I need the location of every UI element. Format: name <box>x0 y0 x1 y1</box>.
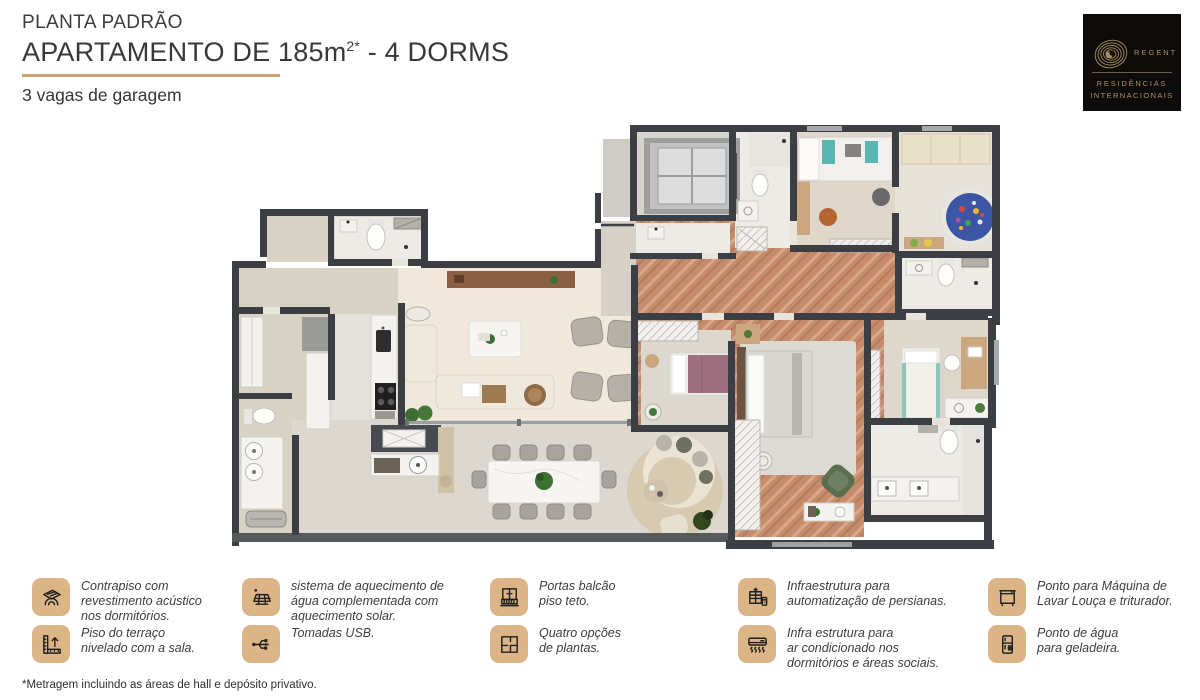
legend-col-2: sistema de aquecimento de água complemen… <box>242 578 480 672</box>
legend-item: Quatro opções de plantas. <box>490 625 728 663</box>
title-main: APARTAMENTO DE 185m <box>22 37 346 67</box>
header: PLANTA PADRÃO APARTAMENTO DE 185m2* - 4 … <box>22 12 509 106</box>
logo-divider <box>1092 72 1172 73</box>
page: PLANTA PADRÃO APARTAMENTO DE 185m2* - 4 … <box>0 0 1200 700</box>
legend-item-text: Tomadas USB. <box>291 625 375 641</box>
dishwasher-point-icon <box>988 578 1026 616</box>
air-conditioning-icon <box>738 625 776 663</box>
legend-item: Infraestrutura para automatização de per… <box>738 578 980 616</box>
acoustic-floor-icon <box>32 578 70 616</box>
title-sup: 2* <box>346 38 360 54</box>
logo-line1: RESIDÊNCIAS <box>1083 79 1181 88</box>
legend-item: Ponto de água para geladeira. <box>988 625 1188 663</box>
legend-item-text: Portas balcão piso teto. <box>539 578 615 609</box>
regent-logo: REGENT RESIDÊNCIAS INTERNACIONAIS <box>1083 14 1181 111</box>
legend-col-4: Infraestrutura para automatização de per… <box>738 578 980 672</box>
legend-item: Infra estrutura para ar condicionado nos… <box>738 625 980 663</box>
legend-item-text: Quatro opções de plantas. <box>539 625 621 656</box>
legend-item-text: Infra estrutura para ar condicionado nos… <box>787 625 939 670</box>
legend-item: sistema de aquecimento de água complemen… <box>242 578 480 616</box>
legend-item-text: Contrapiso com revestimento acústico nos… <box>81 578 202 623</box>
legend-col-5: Ponto para Máquina de Lavar Louça e trit… <box>988 578 1188 672</box>
title-tail: - 4 DORMS <box>360 37 509 67</box>
plan-eyebrow: PLANTA PADRÃO <box>22 12 509 34</box>
footnote: *Metragem incluindo as áreas de hall e d… <box>22 679 317 691</box>
terrace-level-icon <box>32 625 70 663</box>
legend-item-text: Ponto de água para geladeira. <box>1037 625 1120 656</box>
legend-item-text: Piso do terraço nivelado com a sala. <box>81 625 195 656</box>
legend-item-text: Ponto para Máquina de Lavar Louça e trit… <box>1037 578 1173 609</box>
blinds-automation-icon <box>738 578 776 616</box>
page-title: APARTAMENTO DE 185m2* - 4 DORMS <box>22 37 509 68</box>
legend-col-1: Contrapiso com revestimento acústico nos… <box>32 578 232 672</box>
legend-item-text: Infraestrutura para automatização de per… <box>787 578 947 609</box>
fridge-water-icon <box>988 625 1026 663</box>
garage-subtitle: 3 vagas de garagem <box>22 85 509 106</box>
legend-item: Portas balcão piso teto. <box>490 578 728 616</box>
floor-plan <box>232 125 1002 563</box>
legend-col-3: Portas balcão piso teto. Quatro opções d… <box>490 578 728 672</box>
legend-item: Ponto para Máquina de Lavar Louça e trit… <box>988 578 1188 616</box>
legend-item: Tomadas USB. <box>242 625 480 663</box>
balcony-door-icon <box>490 578 528 616</box>
title-underline <box>22 74 280 77</box>
legend-item: Contrapiso com revestimento acústico nos… <box>32 578 232 616</box>
floorplan-options-icon <box>490 625 528 663</box>
logo-brand: REGENT <box>1134 48 1177 57</box>
legend-item-text: sistema de aquecimento de água complemen… <box>291 578 444 623</box>
logo-line2: INTERNACIONAIS <box>1083 91 1181 100</box>
solar-heating-icon <box>242 578 280 616</box>
elevator <box>644 138 740 214</box>
legend-item: Piso do terraço nivelado com a sala. <box>32 625 232 663</box>
usb-outlet-icon <box>242 625 280 663</box>
